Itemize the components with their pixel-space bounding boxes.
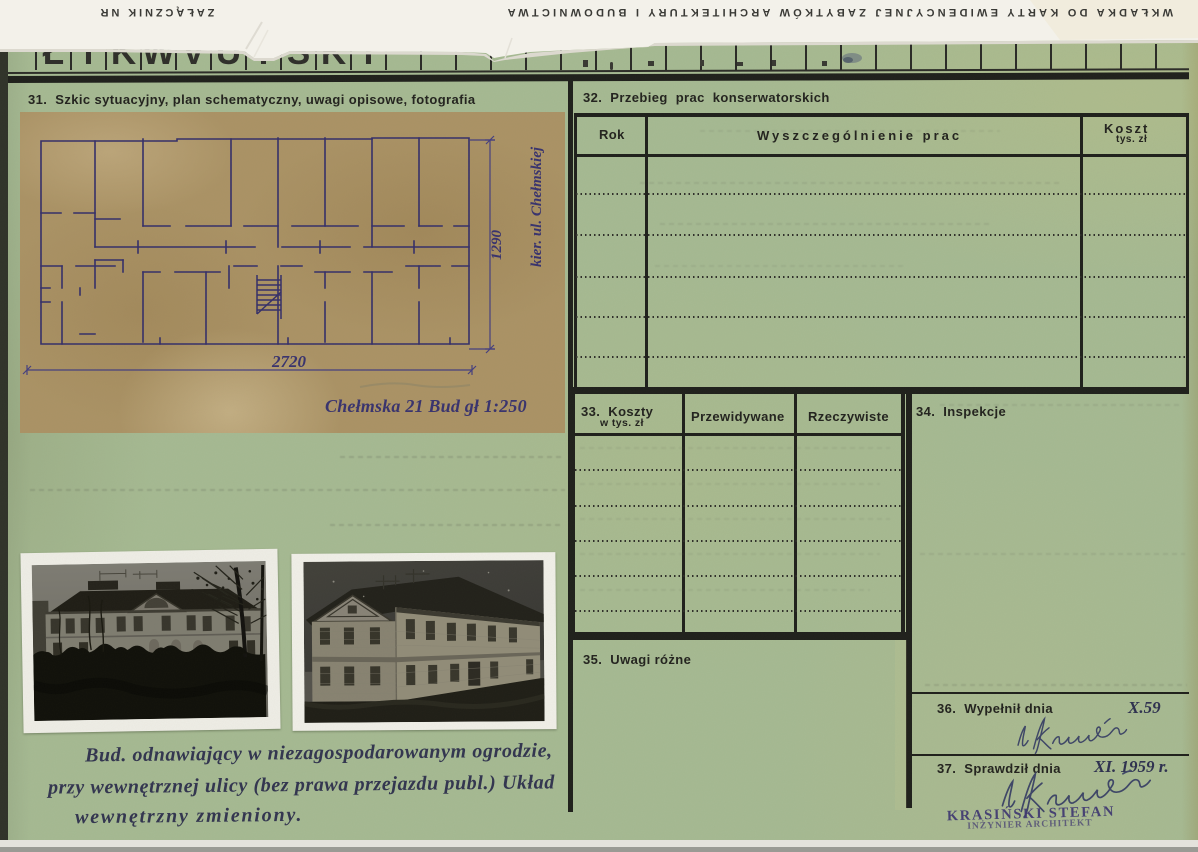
- svg-text:kier. ul. Chełmskiej: kier. ul. Chełmskiej: [529, 146, 545, 267]
- svg-text:2720: 2720: [271, 352, 307, 371]
- svg-text:1290: 1290: [489, 230, 505, 261]
- svg-text:Chełmska 21 Bud gł 1:250: Chełmska 21 Bud gł 1:250: [325, 396, 527, 416]
